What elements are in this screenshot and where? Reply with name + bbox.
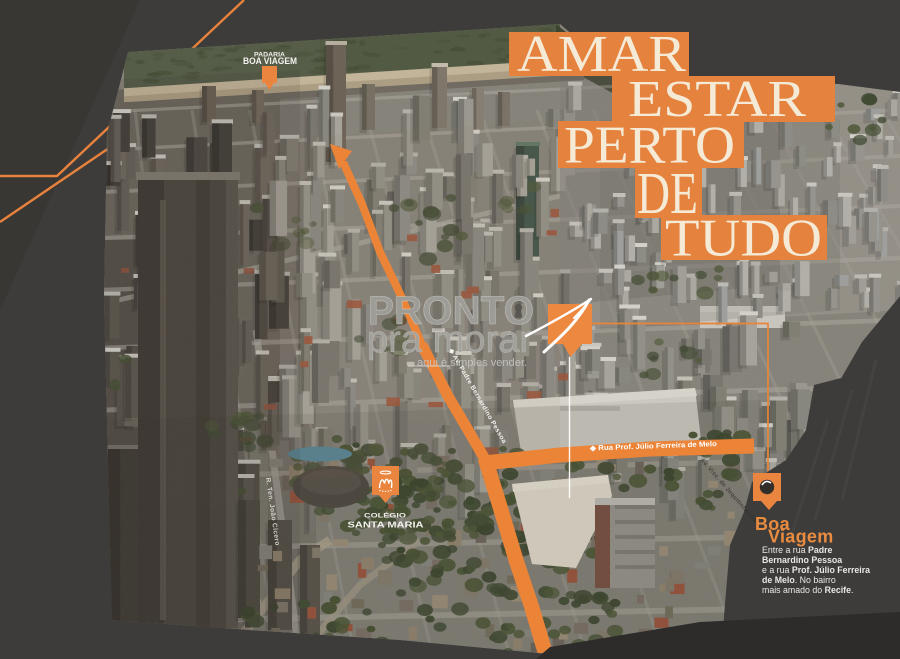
svg-text:TUDO: TUDO [665,210,822,268]
